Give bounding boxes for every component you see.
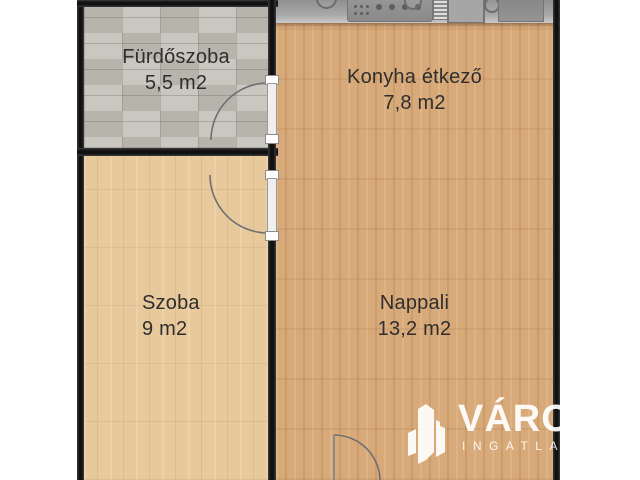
floor-plan: Fürdőszoba 5,5 m2 Konyha étkező 7,8 m2 S… bbox=[0, 0, 640, 480]
szoba-area: 9 m2 bbox=[142, 316, 200, 342]
bathroom-area: 5,5 m2 bbox=[84, 70, 268, 96]
szoba-label: Szoba 9 m2 bbox=[142, 290, 200, 342]
brand-subtitle: INGATLAN bbox=[462, 439, 581, 453]
szoba-door bbox=[267, 178, 277, 233]
watermark: VÁROS INGATLAN bbox=[402, 396, 640, 476]
kitchen-label: Konyha étkező 7,8 m2 bbox=[276, 64, 553, 116]
bathroom-name: Fürdőszoba bbox=[84, 44, 268, 70]
kitchen-name: Konyha étkező bbox=[276, 64, 553, 90]
door-hinge-cap bbox=[265, 134, 279, 144]
brand-name: VÁROS bbox=[458, 398, 598, 441]
door-hinge-cap bbox=[265, 231, 279, 241]
brand-logo-icon bbox=[402, 396, 454, 468]
szoba-name: Szoba bbox=[142, 290, 200, 316]
kitchen-area: 7,8 m2 bbox=[276, 90, 553, 116]
nappali-area: 13,2 m2 bbox=[276, 316, 553, 342]
nappali-name: Nappali bbox=[276, 290, 553, 316]
nappali-label: Nappali 13,2 m2 bbox=[276, 290, 553, 342]
bathroom-label: Fürdőszoba 5,5 m2 bbox=[84, 44, 268, 96]
